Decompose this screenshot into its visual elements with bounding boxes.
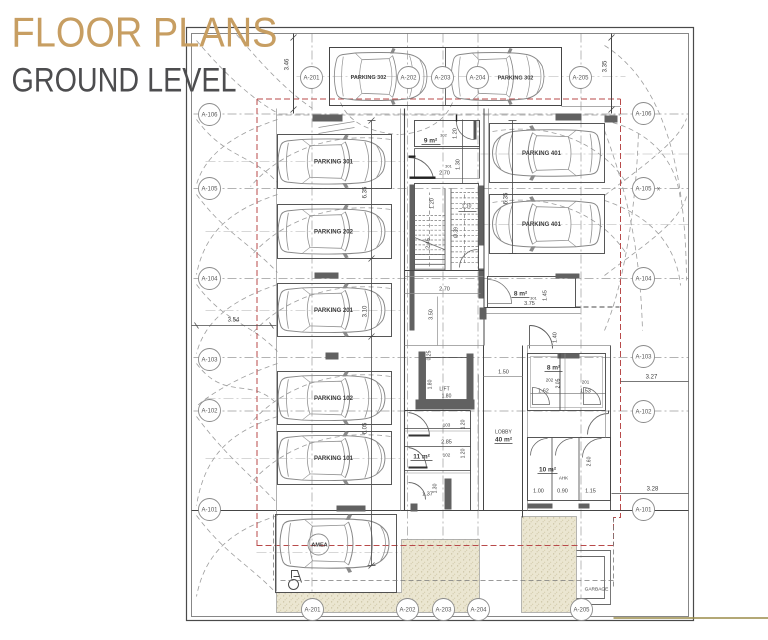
svg-text:AMEA: AMEA <box>311 543 327 549</box>
svg-text:1.30: 1.30 <box>433 483 439 493</box>
svg-text:A-203: A-203 <box>434 76 451 82</box>
svg-text:A-102: A-102 <box>201 409 218 415</box>
svg-text:3.54: 3.54 <box>228 318 240 324</box>
svg-text:2.70: 2.70 <box>439 287 450 293</box>
svg-text:AHK: AHK <box>559 476 568 481</box>
svg-text:3.50: 3.50 <box>429 309 435 320</box>
svg-text:A-203: A-203 <box>435 608 452 614</box>
svg-text:A-201: A-201 <box>303 76 320 82</box>
svg-text:A-204: A-204 <box>470 608 487 614</box>
svg-text:FLOOR PLANS: FLOOR PLANS <box>12 9 278 56</box>
svg-text:PARKING 401: PARKING 401 <box>522 151 562 157</box>
svg-text:A-202: A-202 <box>400 76 417 82</box>
svg-text:A-205: A-205 <box>573 608 590 614</box>
svg-text:102: 102 <box>443 453 451 458</box>
svg-text:A-103: A-103 <box>635 355 652 361</box>
svg-text:1.80: 1.80 <box>442 394 452 400</box>
svg-text:2.85: 2.85 <box>441 440 452 446</box>
svg-text:0.90: 0.90 <box>557 489 568 495</box>
svg-text:A-101: A-101 <box>201 508 218 514</box>
svg-text:202: 202 <box>546 378 554 383</box>
svg-text:A-106: A-106 <box>201 113 218 119</box>
svg-text:Ø.39: Ø.39 <box>454 227 460 238</box>
svg-text:LOBBY: LOBBY <box>495 430 512 436</box>
svg-text:2.70: 2.70 <box>439 171 450 177</box>
svg-text:1.45: 1.45 <box>543 290 549 301</box>
svg-text:A-105: A-105 <box>201 187 218 193</box>
svg-text:A-102: A-102 <box>635 410 652 416</box>
svg-text:10 m²: 10 m² <box>539 467 557 474</box>
svg-text:301: 301 <box>445 164 452 169</box>
svg-text:6.35: 6.35 <box>504 192 510 204</box>
svg-text:A-205: A-205 <box>572 76 589 82</box>
svg-text:LIFT: LIFT <box>439 387 449 393</box>
svg-text:A-204: A-204 <box>469 76 486 82</box>
svg-text:103: 103 <box>443 423 451 428</box>
svg-text:PARKING 101: PARKING 101 <box>314 456 354 462</box>
svg-text:3.35: 3.35 <box>603 60 609 72</box>
svg-text:PARKING 301: PARKING 301 <box>314 160 354 166</box>
svg-text:302: 302 <box>440 133 447 138</box>
svg-text:9 m²: 9 m² <box>424 138 438 145</box>
svg-text:8 m²: 8 m² <box>514 291 528 298</box>
svg-text:A-104: A-104 <box>201 277 218 283</box>
svg-text:3.28: 3.28 <box>647 487 659 493</box>
svg-text:A-101: A-101 <box>635 508 652 514</box>
svg-text:A-105: A-105 <box>635 187 652 193</box>
svg-text:301: 301 <box>530 296 537 301</box>
svg-text:PARKING 201: PARKING 201 <box>314 308 354 314</box>
svg-text:1.20: 1.20 <box>430 198 436 209</box>
svg-text:x: x <box>657 187 660 193</box>
svg-text:A-104: A-104 <box>635 277 652 283</box>
svg-text:GARBAGE: GARBAGE <box>585 587 609 593</box>
svg-text:3.46: 3.46 <box>285 58 291 70</box>
svg-text:8 m²: 8 m² <box>547 365 561 372</box>
svg-text:3.27: 3.27 <box>646 375 658 381</box>
svg-text:A-103: A-103 <box>201 358 218 364</box>
svg-text:3.75: 3.75 <box>524 301 535 307</box>
svg-text:6.05: 6.05 <box>363 422 369 434</box>
svg-text:1.50: 1.50 <box>498 370 509 376</box>
svg-text:1.20: 1.20 <box>453 128 459 139</box>
svg-text:PARKING 302: PARKING 302 <box>498 76 534 82</box>
svg-text:PARKING 401: PARKING 401 <box>522 222 562 228</box>
svg-text:1.20: 1.20 <box>461 419 467 429</box>
svg-text:2.60: 2.60 <box>587 456 593 466</box>
svg-text:3.10: 3.10 <box>363 305 369 317</box>
svg-text:A-106: A-106 <box>635 112 652 118</box>
svg-text:A-202: A-202 <box>399 608 416 614</box>
svg-text:PARKING 302: PARKING 302 <box>351 75 387 81</box>
svg-text:1.10: 1.10 <box>462 204 472 210</box>
svg-text:1.00: 1.00 <box>533 489 544 495</box>
svg-text:GROUND LEVEL: GROUND LEVEL <box>12 62 237 100</box>
svg-text:201: 201 <box>582 380 590 385</box>
svg-text:1.80: 1.80 <box>428 379 434 389</box>
svg-text:1.15: 1.15 <box>585 489 596 495</box>
svg-text:A-201: A-201 <box>304 608 321 614</box>
svg-text:1.40: 1.40 <box>553 332 559 343</box>
svg-text:PARKING 202: PARKING 202 <box>314 230 354 236</box>
svg-text:PARKING 102: PARKING 102 <box>314 396 354 402</box>
svg-text:40 m²: 40 m² <box>495 437 513 444</box>
svg-text:0.25: 0.25 <box>427 350 433 360</box>
svg-text:2.05: 2.05 <box>556 378 562 388</box>
svg-text:1.20: 1.20 <box>461 448 467 458</box>
svg-text:1.30: 1.30 <box>456 159 462 170</box>
svg-text:6.35: 6.35 <box>363 186 369 198</box>
svg-text:2.45: 2.45 <box>426 238 432 249</box>
